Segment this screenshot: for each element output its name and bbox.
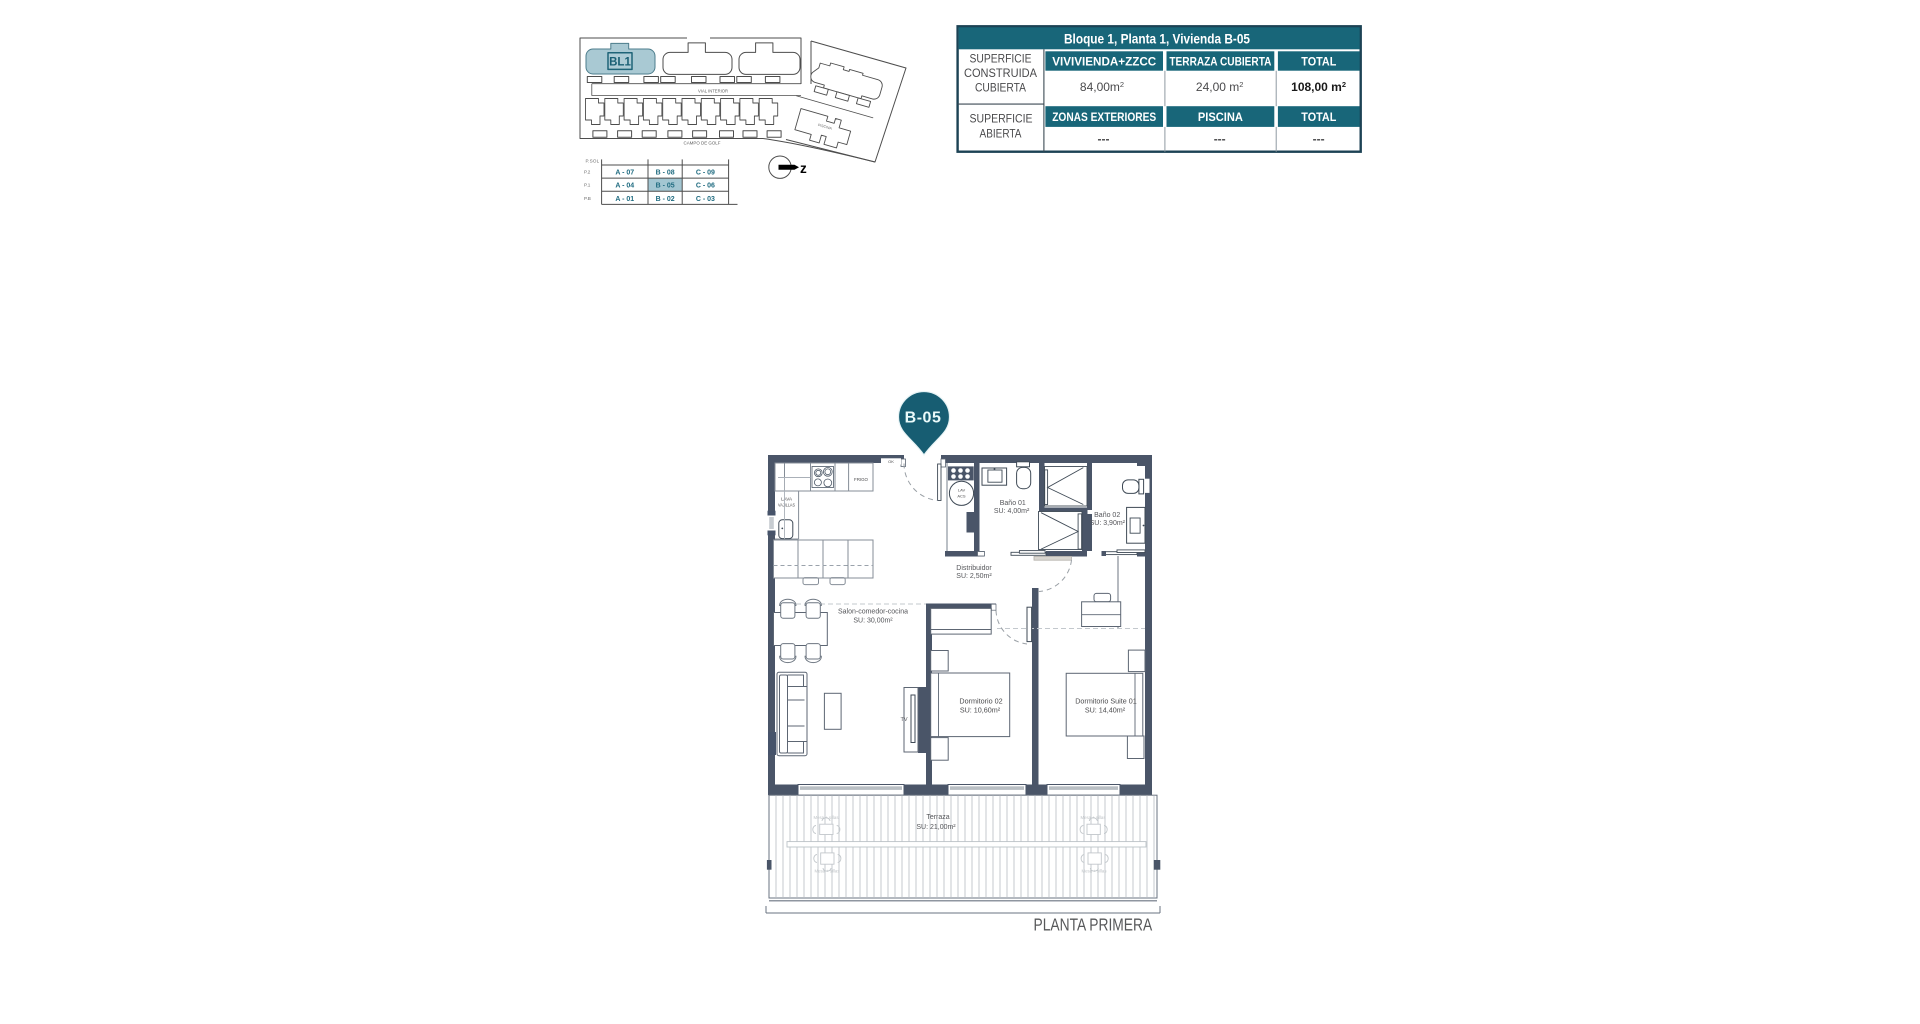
svg-text:FRIGO: FRIGO — [854, 477, 869, 482]
svg-text:TV: TV — [901, 717, 908, 723]
svg-text:Baño 01: Baño 01 — [1000, 500, 1026, 507]
svg-text:B - 08: B - 08 — [656, 170, 675, 177]
svg-text:B-05: B-05 — [905, 410, 942, 427]
svg-text:TOTAL: TOTAL — [1301, 54, 1336, 68]
svg-text:B - 05: B - 05 — [656, 183, 675, 190]
svg-text:P.SOL: P.SOL — [586, 159, 600, 164]
svg-text:Distribuidor: Distribuidor — [956, 565, 992, 572]
svg-text:---: --- — [1214, 132, 1226, 146]
svg-text:Bloque 1, Planta 1, Vivienda B: Bloque 1, Planta 1, Vivienda B-05 — [1064, 31, 1250, 47]
svg-text:SU: 30,00m²: SU: 30,00m² — [853, 617, 893, 624]
svg-text:C - 06: C - 06 — [696, 183, 715, 190]
svg-text:VIVIVIENDA+ZZCC: VIVIVIENDA+ZZCC — [1052, 54, 1156, 68]
svg-text:OK: OK — [888, 459, 894, 464]
svg-text:LAV: LAV — [958, 488, 966, 493]
svg-text:ABIERTA: ABIERTA — [980, 127, 1022, 141]
svg-text:CUBIERTA: CUBIERTA — [975, 81, 1026, 95]
svg-text:SU: 3,90m²: SU: 3,90m² — [1090, 520, 1126, 527]
svg-text:A - 01: A - 01 — [615, 196, 634, 203]
svg-text:LAVA: LAVA — [781, 497, 792, 502]
svg-text:ZONAS EXTERIORES: ZONAS EXTERIORES — [1052, 110, 1156, 124]
svg-text:84,00m2: 84,00m2 — [1080, 80, 1124, 94]
svg-text:C - 03: C - 03 — [696, 196, 715, 203]
svg-text:Mesa + sillas: Mesa + sillas — [1082, 869, 1107, 874]
svg-text:A - 07: A - 07 — [615, 170, 634, 177]
svg-text:Baño 02: Baño 02 — [1094, 512, 1120, 519]
svg-text:ACS: ACS — [957, 493, 966, 498]
svg-text:C - 09: C - 09 — [696, 170, 715, 177]
svg-text:Dormitorio 02: Dormitorio 02 — [959, 697, 1002, 706]
svg-text:P.B: P.B — [584, 196, 591, 201]
svg-text:---: --- — [1313, 132, 1325, 146]
svg-text:TOTAL: TOTAL — [1301, 110, 1336, 124]
svg-text:Salon-comedor-cocina: Salon-comedor-cocina — [838, 609, 908, 616]
svg-text:24,00 m2: 24,00 m2 — [1196, 80, 1244, 94]
svg-text:CAMPO DE GOLF: CAMPO DE GOLF — [684, 141, 721, 146]
svg-text:VAJILLAS: VAJILLAS — [778, 503, 795, 508]
svg-text:Mesa + sillas: Mesa + sillas — [815, 869, 840, 874]
svg-text:---: --- — [1098, 132, 1110, 146]
svg-text:PISCINA: PISCINA — [1198, 110, 1243, 124]
svg-text:z: z — [800, 161, 807, 176]
svg-text:108,00 m2: 108,00 m2 — [1291, 80, 1346, 94]
svg-text:SUPERFICIE: SUPERFICIE — [970, 52, 1032, 66]
svg-text:CONSTRUIDA: CONSTRUIDA — [964, 66, 1037, 80]
svg-text:A - 04: A - 04 — [615, 183, 634, 190]
svg-text:PLANTA PRIMERA: PLANTA PRIMERA — [1034, 916, 1153, 935]
svg-text:Dormitorio Suite 01: Dormitorio Suite 01 — [1075, 697, 1137, 706]
svg-text:Terraza: Terraza — [926, 814, 949, 821]
svg-text:BL1: BL1 — [609, 57, 631, 69]
svg-text:SU: 21,00m²: SU: 21,00m² — [916, 824, 956, 831]
svg-text:SUPERFICIE: SUPERFICIE — [970, 112, 1033, 126]
svg-text:P.1: P.1 — [584, 183, 591, 188]
svg-text:B - 02: B - 02 — [656, 196, 675, 203]
svg-text:VIAL INTERIOR: VIAL INTERIOR — [698, 89, 728, 94]
svg-text:TERRAZA CUBIERTA: TERRAZA CUBIERTA — [1169, 54, 1271, 68]
svg-text:P.2: P.2 — [584, 170, 591, 175]
svg-text:SU: 4,00m²: SU: 4,00m² — [994, 508, 1030, 515]
svg-text:SU: 10,60m²: SU: 10,60m² — [960, 706, 1001, 715]
svg-text:SU: 14,40m²: SU: 14,40m² — [1085, 706, 1126, 715]
svg-text:SU: 2,50m²: SU: 2,50m² — [956, 573, 992, 580]
